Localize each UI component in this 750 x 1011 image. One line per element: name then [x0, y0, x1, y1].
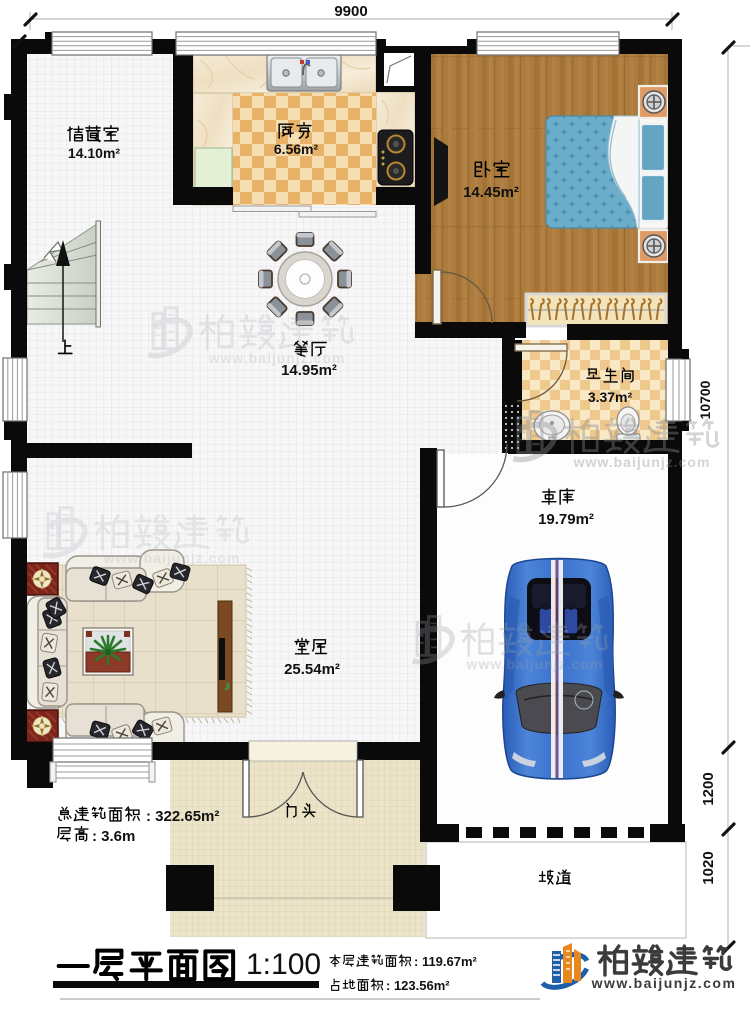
svg-text:3.37m²: 3.37m²: [588, 389, 633, 405]
svg-text:1200: 1200: [700, 772, 717, 805]
svg-text:10700: 10700: [697, 380, 713, 419]
svg-text:: 322.65m²: : 322.65m²: [146, 808, 219, 825]
svg-text:1020: 1020: [700, 851, 717, 884]
svg-text:25.54m²: 25.54m²: [284, 661, 340, 678]
svg-text:9900: 9900: [334, 3, 367, 20]
svg-text:: 119.67m²: : 119.67m²: [414, 954, 478, 969]
svg-text:www.baijunjz.com: www.baijunjz.com: [103, 550, 241, 566]
svg-text:www.baijunjz.com: www.baijunjz.com: [591, 975, 737, 991]
svg-text:www.baijunjz.com: www.baijunjz.com: [573, 454, 711, 470]
svg-text:14.45m²: 14.45m²: [463, 184, 519, 201]
svg-text:www.baijunjz.com: www.baijunjz.com: [465, 656, 603, 672]
svg-text:19.79m²: 19.79m²: [538, 511, 594, 528]
svg-text:14.10m²: 14.10m²: [68, 145, 120, 161]
svg-text:www.baijunjz.com: www.baijunjz.com: [208, 350, 346, 366]
svg-text:: 123.56m²: : 123.56m²: [386, 978, 450, 993]
svg-text:: 3.6m: : 3.6m: [92, 828, 135, 845]
svg-text:6.56m²: 6.56m²: [274, 141, 319, 157]
svg-text:1:100: 1:100: [246, 948, 321, 981]
